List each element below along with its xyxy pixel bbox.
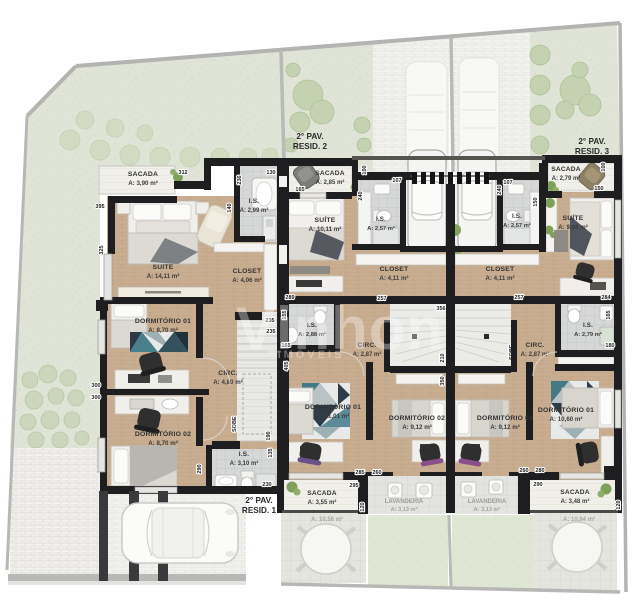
svg-text:140: 140 — [227, 203, 233, 212]
svg-text:A: 4,11 m²: A: 4,11 m² — [379, 275, 408, 282]
svg-text:350: 350 — [440, 376, 446, 385]
svg-text:A: 4,06 m²: A: 4,06 m² — [232, 277, 262, 284]
svg-text:A: 3,13 m²: A: 3,13 m² — [391, 506, 418, 513]
svg-text:A: 2,57 m²: A: 2,57 m² — [503, 222, 531, 229]
svg-text:257: 257 — [514, 295, 523, 301]
svg-text:SACADA: SACADA — [560, 489, 589, 496]
svg-text:130: 130 — [266, 170, 275, 176]
svg-text:A: 2,57 m²: A: 2,57 m² — [367, 225, 395, 232]
svg-text:A: 10,94 m²: A: 10,94 m² — [563, 516, 595, 523]
svg-text:A: 3,90 m²: A: 3,90 m² — [128, 180, 158, 187]
svg-text:2° PAV.: 2° PAV. — [296, 132, 323, 141]
svg-text:SUÍTE: SUÍTE — [562, 213, 583, 222]
svg-text:A: 3,10 m²: A: 3,10 m² — [230, 460, 259, 467]
svg-text:295: 295 — [349, 483, 358, 489]
svg-text:LAVANDERIA: LAVANDERIA — [385, 499, 424, 505]
svg-text:CLOSET: CLOSET — [233, 268, 262, 275]
svg-text:CLOSET: CLOSET — [380, 266, 409, 273]
svg-text:2° PAV.: 2° PAV. — [245, 496, 272, 505]
svg-text:A: 9,12 m²: A: 9,12 m² — [490, 424, 520, 431]
svg-text:100: 100 — [601, 162, 607, 171]
svg-text:290: 290 — [197, 464, 203, 473]
svg-text:395: 395 — [95, 204, 104, 210]
svg-text:285: 285 — [355, 470, 364, 476]
svg-text:A: 2,79 m²: A: 2,79 m² — [552, 175, 581, 182]
svg-text:135: 135 — [268, 448, 274, 457]
svg-text:300: 300 — [91, 395, 100, 401]
svg-text:A: 3,48 m²: A: 3,48 m² — [561, 498, 590, 505]
svg-text:180: 180 — [605, 343, 614, 349]
svg-text:SACADA: SACADA — [128, 171, 158, 178]
svg-text:120: 120 — [616, 500, 622, 509]
svg-text:DORMITÓRIO 02: DORMITÓRIO 02 — [389, 413, 445, 422]
svg-text:A: 3,55 m²: A: 3,55 m² — [308, 499, 337, 506]
svg-text:A: 8,70 m²: A: 8,70 m² — [148, 440, 178, 447]
svg-text:A: 3,13 m²: A: 3,13 m² — [474, 506, 501, 513]
svg-text:190: 190 — [266, 431, 272, 440]
svg-text:A: 9,94 m²: A: 9,94 m² — [558, 224, 588, 231]
svg-text:A: 14,11 m²: A: 14,11 m² — [147, 273, 180, 280]
svg-text:A: 9,12 m²: A: 9,12 m² — [402, 424, 432, 431]
svg-text:IMÓVEIS: IMÓVEIS — [278, 348, 345, 361]
svg-text:RESID. 3: RESID. 3 — [575, 147, 610, 156]
svg-text:DORMITÓRIO 02: DORMITÓRIO 02 — [477, 413, 533, 422]
svg-text:SACADA: SACADA — [551, 166, 580, 173]
svg-text:260: 260 — [372, 470, 381, 476]
svg-text:DORMITÓRIO 02: DORMITÓRIO 02 — [135, 429, 191, 438]
svg-text:260: 260 — [519, 468, 528, 474]
svg-text:I.S.: I.S. — [583, 322, 593, 329]
svg-text:405: 405 — [284, 361, 290, 370]
svg-text:I.S.: I.S. — [512, 213, 522, 220]
svg-text:I.S.: I.S. — [376, 216, 386, 223]
svg-text:107: 107 — [392, 178, 401, 184]
svg-text:SACADA: SACADA — [307, 490, 336, 497]
svg-text:236: 236 — [237, 175, 243, 184]
svg-text:LAVANDERIA: LAVANDERIA — [468, 499, 507, 505]
svg-text:150: 150 — [594, 186, 603, 192]
svg-text:A: 2,87 m²: A: 2,87 m² — [521, 351, 550, 358]
svg-text:240: 240 — [497, 185, 503, 194]
svg-text:240: 240 — [358, 191, 364, 200]
svg-text:CLOSET: CLOSET — [486, 266, 515, 273]
svg-text:107: 107 — [503, 180, 512, 186]
svg-text:RESID. 2: RESID. 2 — [293, 142, 328, 151]
svg-text:DORMITÓRIO 01: DORMITÓRIO 01 — [135, 316, 191, 325]
svg-text:I.S.: I.S. — [249, 198, 259, 205]
svg-text:312: 312 — [178, 170, 187, 176]
svg-text:150: 150 — [533, 197, 539, 206]
svg-text:230: 230 — [262, 482, 271, 488]
svg-text:A: 4,80 m²: A: 4,80 m² — [213, 379, 243, 386]
svg-text:120: 120 — [360, 502, 366, 511]
svg-text:I.S.: I.S. — [239, 451, 249, 458]
svg-text:CIRC.: CIRC. — [526, 342, 545, 349]
svg-text:A: 8,70 m²: A: 8,70 m² — [148, 327, 178, 334]
svg-text:SOBE: SOBE — [232, 416, 238, 432]
svg-text:2° PAV.: 2° PAV. — [578, 137, 605, 146]
svg-text:SUITE: SUITE — [152, 264, 173, 271]
svg-text:A: 11,01 m²: A: 11,01 m² — [317, 413, 350, 420]
svg-text:325: 325 — [99, 245, 105, 254]
svg-text:DORMITÓRIO 01: DORMITÓRIO 01 — [305, 402, 361, 411]
svg-text:SACADA: SACADA — [315, 170, 344, 177]
svg-text:RESID. 1: RESID. 1 — [242, 506, 277, 515]
svg-text:165: 165 — [606, 310, 612, 319]
svg-text:A: 10,11 m²: A: 10,11 m² — [309, 226, 342, 233]
svg-text:165: 165 — [295, 187, 304, 193]
svg-text:300: 300 — [91, 383, 100, 389]
svg-text:SUÍTE: SUÍTE — [314, 215, 335, 224]
svg-text:A: 2,79 m²: A: 2,79 m² — [574, 331, 602, 338]
svg-text:284: 284 — [601, 295, 611, 301]
svg-text:A: 10,58 m²: A: 10,58 m² — [311, 516, 343, 523]
svg-text:A: 10,60 m²: A: 10,60 m² — [549, 416, 582, 423]
svg-text:DORMITÓRIO 01: DORMITÓRIO 01 — [538, 405, 594, 414]
svg-text:A: 2,85 m²: A: 2,85 m² — [316, 179, 345, 186]
svg-text:100: 100 — [362, 165, 368, 174]
svg-text:280: 280 — [535, 468, 544, 474]
svg-text:A: 2,99 m²: A: 2,99 m² — [240, 207, 269, 214]
svg-text:290: 290 — [533, 482, 542, 488]
svg-text:A: 4,11 m²: A: 4,11 m² — [485, 275, 514, 282]
